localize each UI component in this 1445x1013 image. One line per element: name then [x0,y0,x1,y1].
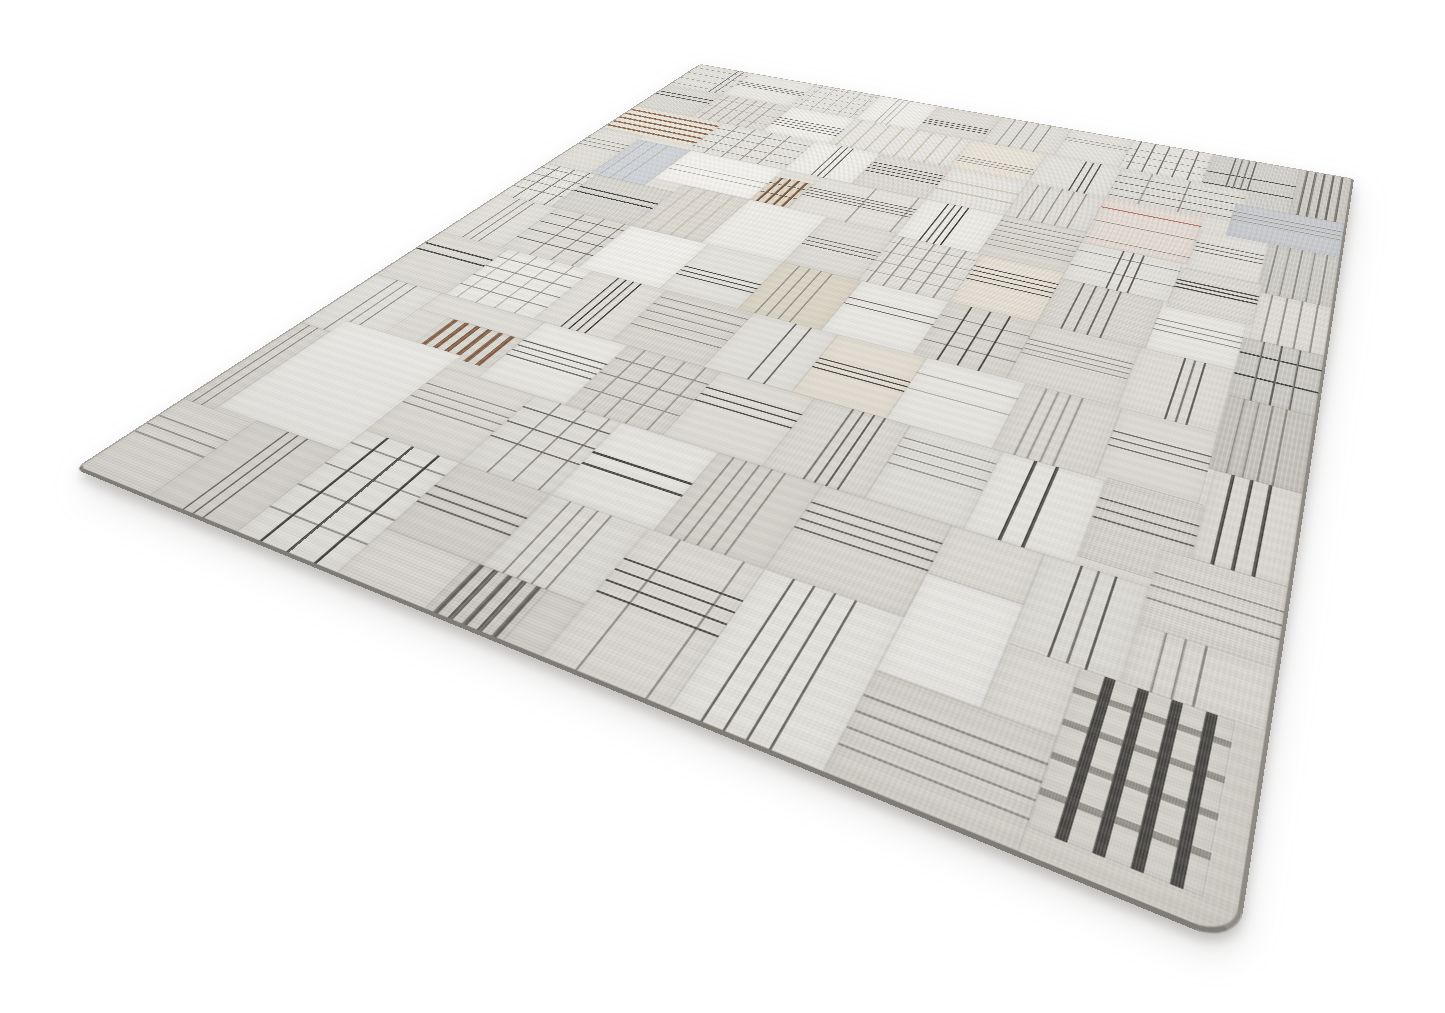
rug-shadow [0,0,1445,1013]
patchwork-kilim-rug [74,64,1354,947]
product-photo-scene [0,0,1445,1013]
